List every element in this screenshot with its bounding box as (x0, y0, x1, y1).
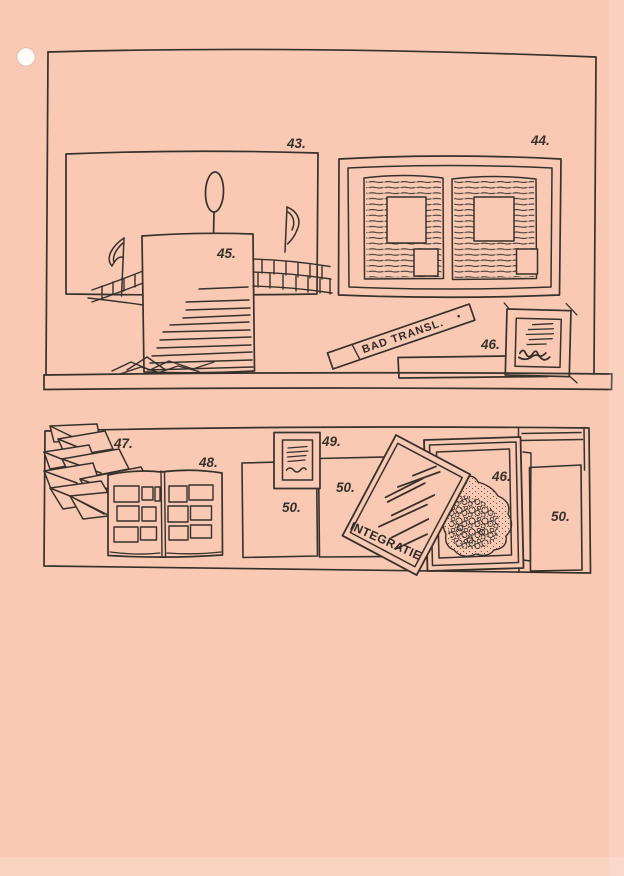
photo-album (108, 470, 223, 557)
label-47: 47. (113, 436, 133, 451)
label-50-left: 50. (282, 500, 301, 515)
top-shelf-panel: BAD TRANSL. (44, 49, 612, 389)
framed-note (502, 302, 579, 383)
brick-wall-right (253, 259, 332, 294)
label-45: 45. (216, 246, 236, 261)
punch-hole-icon (17, 48, 35, 66)
framed-letter (274, 433, 320, 489)
label-46-top: 46. (480, 337, 500, 352)
label-43: 43. (286, 136, 306, 151)
label-50-right: 50. (551, 509, 570, 524)
page-edge-right (609, 0, 624, 876)
diptych-frame (339, 156, 562, 297)
label-46-bottom: 46. (491, 469, 511, 484)
stick-figure (205, 172, 224, 235)
label-48: 48. (198, 455, 218, 470)
label-50-middle: 50. (336, 480, 355, 495)
sketch-drawing: BAD TRANSL. (0, 0, 624, 876)
label-49: 49. (321, 434, 341, 449)
flag-left (109, 238, 124, 296)
flag-right (285, 207, 299, 252)
page-edge-bottom (0, 857, 624, 876)
brick-wall-left (88, 271, 143, 305)
sketch-page: BAD TRANSL. (0, 0, 624, 876)
label-44: 44. (530, 133, 550, 148)
right-section-divider (519, 428, 585, 572)
